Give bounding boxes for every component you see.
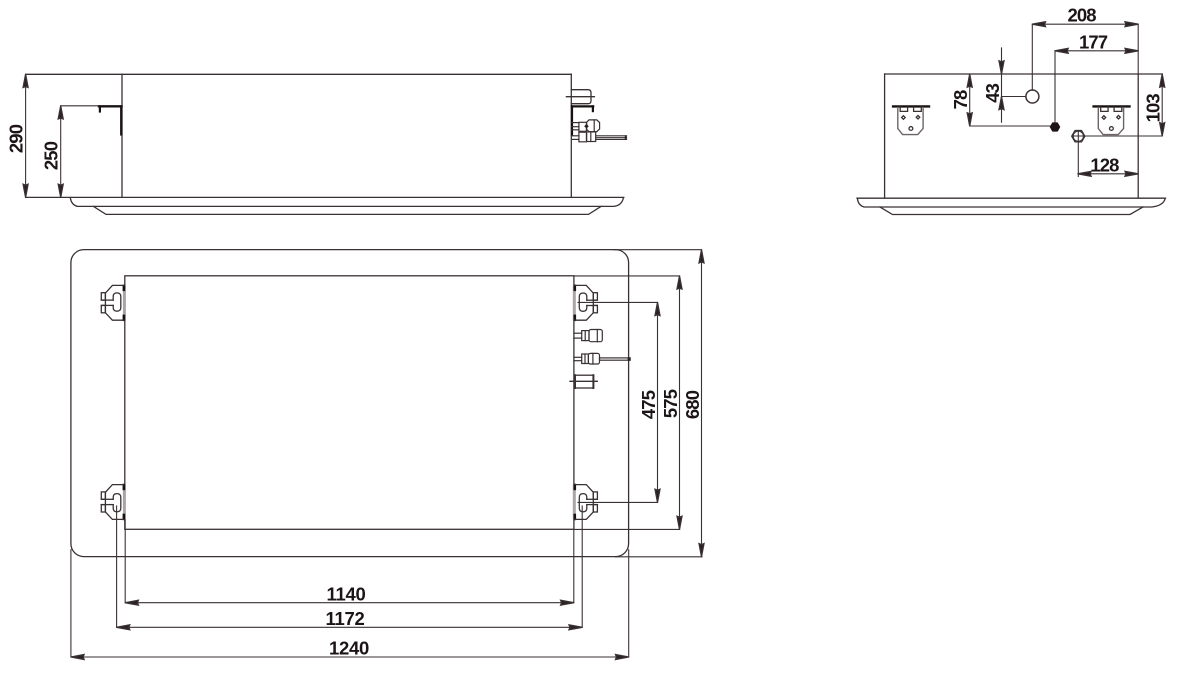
svg-text:250: 250 [41,141,62,170]
svg-text:475: 475 [638,390,659,419]
svg-text:208: 208 [1068,5,1097,26]
svg-text:103: 103 [1142,94,1163,123]
svg-text:128: 128 [1090,154,1119,175]
svg-text:78: 78 [950,90,971,109]
svg-text:1140: 1140 [327,583,366,604]
svg-text:575: 575 [660,389,681,418]
svg-text:43: 43 [982,83,1003,102]
svg-text:290: 290 [5,124,26,153]
svg-text:177: 177 [1079,31,1108,52]
svg-text:680: 680 [682,390,703,419]
svg-text:1172: 1172 [326,608,365,629]
svg-text:1240: 1240 [329,638,369,659]
